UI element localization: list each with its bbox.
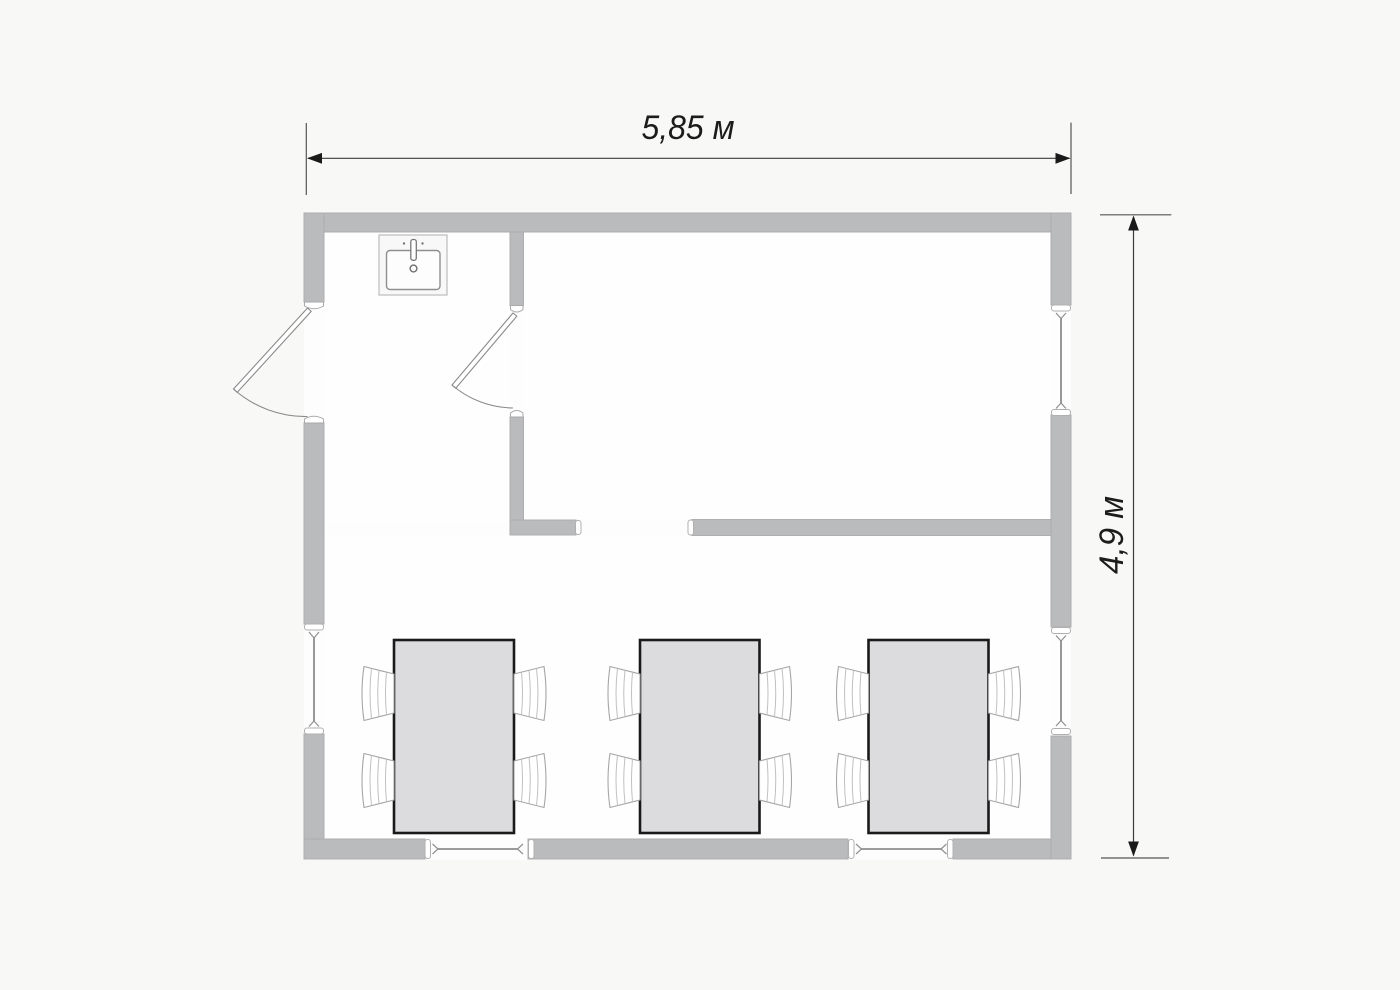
svg-text:4,9 м: 4,9 м <box>1093 496 1131 574</box>
svg-text:5,85 м: 5,85 м <box>642 109 735 147</box>
